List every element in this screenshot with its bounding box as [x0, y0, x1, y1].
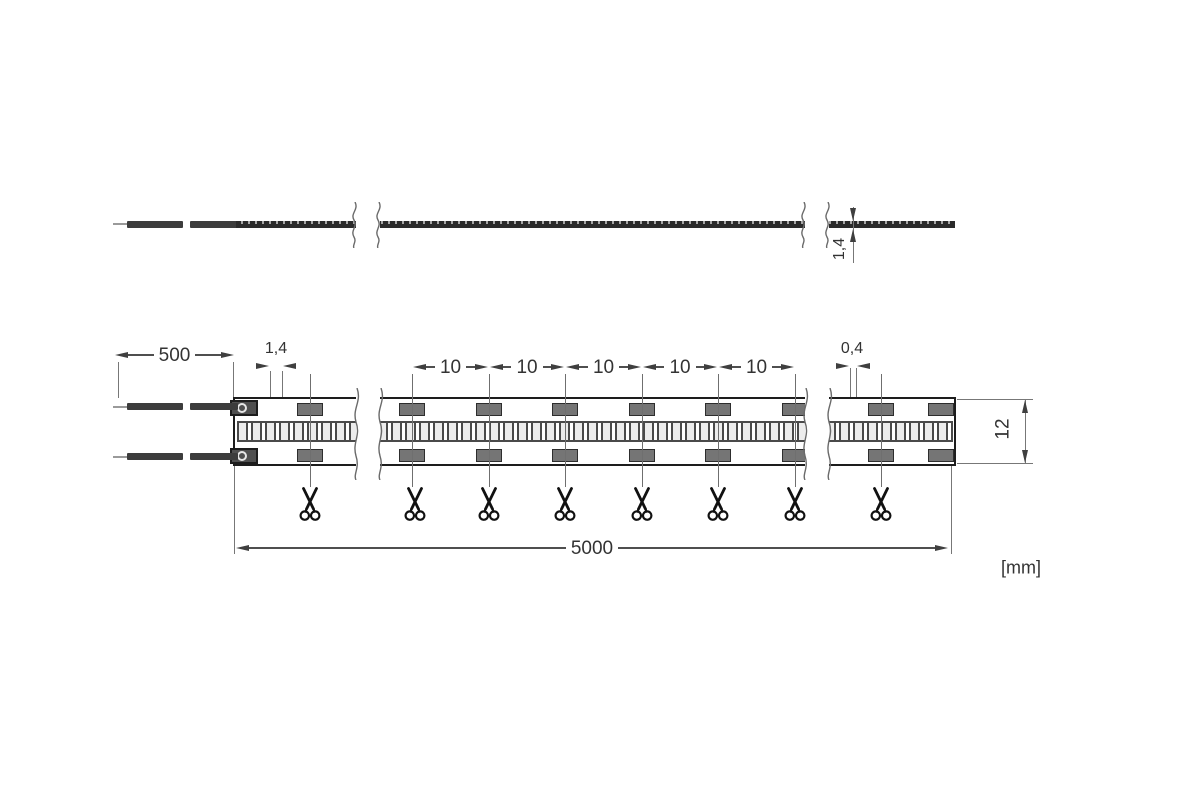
dim-line: [772, 366, 781, 368]
dim-arrow-left: [857, 363, 870, 369]
dim-arrow-up: [850, 229, 856, 242]
scissors-icon: [706, 487, 730, 523]
dim-line: [128, 354, 154, 356]
dim-line: [426, 366, 435, 368]
cut-line: [718, 374, 719, 487]
dim-label-segment: 10: [741, 358, 772, 377]
dim-segment: 10: [413, 357, 488, 377]
dim-arrow-left: [490, 364, 503, 370]
dim-label-led-gap: 0,4: [841, 341, 863, 357]
break-mark-icon: [348, 202, 360, 248]
dim-arrow-right: [935, 545, 948, 551]
led-profile-dashes: [236, 221, 955, 224]
dim-lead-length: 500: [115, 345, 234, 365]
wire-segment: [190, 453, 238, 460]
dim-label-lead-length: 500: [154, 346, 196, 365]
dim-arrow-left: [283, 363, 296, 369]
scissors-icon: [553, 487, 577, 523]
dim-line: [619, 366, 628, 368]
dim-line: [195, 354, 221, 356]
dim-line: [543, 366, 551, 368]
side-wire-segment: [190, 221, 238, 228]
dim-arrow-right: [221, 352, 234, 358]
wire-segment: [127, 453, 183, 460]
scissors-icon: [630, 487, 654, 523]
scissors-icon: [477, 487, 501, 523]
wire-segment: [190, 403, 238, 410]
dim-arrow-left: [115, 352, 128, 358]
dim-label-led-width: 1,4: [265, 341, 287, 357]
solder-eyelet: [237, 403, 247, 413]
dim-arrow-down: [850, 208, 856, 221]
dim-label-thickness: 1,4: [832, 238, 848, 260]
dim-arrow-right: [781, 364, 794, 370]
side-wire-segment: [127, 221, 183, 228]
dim-label-total-length: 5000: [566, 539, 618, 558]
break-mark-icon: [374, 388, 386, 480]
cut-line: [489, 374, 490, 487]
dim-arrow-down: [1022, 450, 1028, 463]
break-mark-icon: [823, 388, 835, 480]
dim-arrow-right: [475, 364, 488, 370]
dim-line: [656, 366, 664, 368]
break-mark-icon: [799, 388, 811, 480]
strip-side-profile: [236, 221, 955, 228]
cut-line: [565, 374, 566, 487]
dim-arrow-right: [704, 364, 717, 370]
cut-line: [795, 374, 796, 487]
break-mark-icon: [350, 388, 362, 480]
solder-eyelet: [237, 451, 247, 461]
dim-segment: 10: [566, 357, 641, 377]
extension-line: [957, 463, 1033, 464]
led-emitter-row: [237, 421, 953, 442]
dim-label-segment: 10: [511, 358, 542, 377]
scissors-icon: [298, 487, 322, 523]
dim-line: [579, 366, 588, 368]
technical-drawing-led-strip: 1,4 500 1,4 10 10 10 10 10 0: [0, 0, 1200, 800]
dim-arrow-right: [551, 364, 564, 370]
dim-label-segment: 10: [435, 358, 466, 377]
solder-pad-end: [928, 449, 954, 462]
dim-segment: 10: [490, 357, 564, 377]
dim-segment: 10: [719, 357, 794, 377]
solder-pad-end: [928, 403, 954, 416]
dim-arrow-right: [836, 363, 849, 369]
unit-note: [mm]: [1001, 558, 1041, 579]
extension-line: [118, 362, 119, 398]
dim-arrow-left: [566, 364, 579, 370]
cut-line: [412, 374, 413, 487]
scissors-icon: [403, 487, 427, 523]
scissors-icon: [869, 487, 893, 523]
dim-arrow-up: [1022, 400, 1028, 413]
dim-arrow-left: [236, 545, 249, 551]
cut-line: [642, 374, 643, 487]
dim-line: [618, 547, 935, 549]
dim-label-segment: 10: [588, 358, 619, 377]
dim-label-strip-width: 12: [994, 418, 1013, 439]
break-mark-icon: [372, 202, 384, 248]
dim-line: [466, 366, 475, 368]
scissors-icon: [783, 487, 807, 523]
dim-label-segment: 10: [664, 358, 695, 377]
extension-line: [233, 362, 234, 398]
break-mark-icon: [821, 202, 833, 248]
extension-line: [951, 466, 952, 554]
extension-line: [234, 466, 235, 554]
cut-line: [881, 374, 882, 487]
wire-segment: [127, 403, 183, 410]
dim-segment: 10: [643, 357, 717, 377]
dim-arrow-left: [719, 364, 732, 370]
dim-arrow-left: [413, 364, 426, 370]
dim-line: [249, 547, 566, 549]
dim-arrow-right: [256, 363, 269, 369]
dim-line: [696, 366, 704, 368]
cut-line: [310, 374, 311, 487]
break-mark-icon: [797, 202, 809, 248]
dim-line: [732, 366, 741, 368]
dim-total-length: 5000: [236, 538, 948, 558]
dim-line: [503, 366, 511, 368]
dim-arrow-left: [643, 364, 656, 370]
dim-arrow-right: [628, 364, 641, 370]
